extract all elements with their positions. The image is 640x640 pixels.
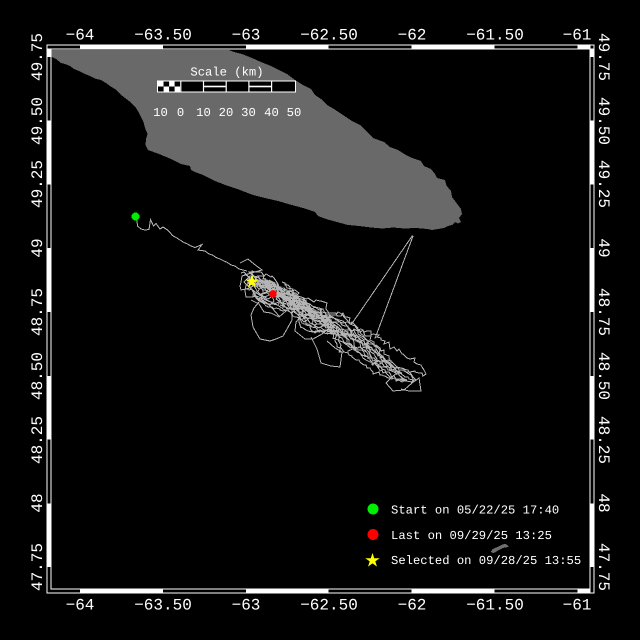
svg-text:48.25: 48.25 <box>29 416 47 464</box>
svg-text:−62: −62 <box>398 27 427 45</box>
svg-text:−64: −64 <box>66 597 95 615</box>
svg-text:10: 10 <box>196 106 211 120</box>
svg-text:49: 49 <box>29 238 47 257</box>
svg-text:49: 49 <box>594 238 612 257</box>
svg-text:−62: −62 <box>398 597 427 615</box>
svg-text:−61.50: −61.50 <box>466 597 524 615</box>
svg-text:47.75: 47.75 <box>594 543 612 591</box>
svg-text:Last on 09/29/25 13:25: Last on 09/29/25 13:25 <box>391 529 552 543</box>
svg-text:Scale (km): Scale (km) <box>190 66 263 80</box>
svg-text:−61: −61 <box>563 27 592 45</box>
svg-text:−61: −61 <box>563 597 592 615</box>
svg-text:49.25: 49.25 <box>29 160 47 208</box>
svg-text:48.75: 48.75 <box>594 288 612 336</box>
svg-text:47.75: 47.75 <box>29 543 47 591</box>
svg-text:48.75: 48.75 <box>29 288 47 336</box>
svg-text:Selected on 09/28/25 13:55: Selected on 09/28/25 13:55 <box>391 554 581 568</box>
svg-text:48.50: 48.50 <box>594 352 612 400</box>
svg-text:49.50: 49.50 <box>29 97 47 145</box>
svg-text:−63: −63 <box>232 27 261 45</box>
svg-text:−62.50: −62.50 <box>300 597 358 615</box>
svg-text:10: 10 <box>153 106 168 120</box>
svg-text:50: 50 <box>287 106 302 120</box>
svg-text:−63.50: −63.50 <box>134 597 192 615</box>
svg-text:48: 48 <box>594 493 612 512</box>
svg-text:0: 0 <box>177 106 184 120</box>
svg-text:Start on 05/22/25 17:40: Start on 05/22/25 17:40 <box>391 504 559 518</box>
svg-text:20: 20 <box>219 106 234 120</box>
svg-text:49.25: 49.25 <box>594 160 612 208</box>
svg-text:48.25: 48.25 <box>594 416 612 464</box>
svg-text:−63.50: −63.50 <box>134 27 192 45</box>
svg-text:−61.50: −61.50 <box>466 27 524 45</box>
svg-text:30: 30 <box>241 106 256 120</box>
svg-text:49.75: 49.75 <box>594 33 612 81</box>
svg-text:48.50: 48.50 <box>29 352 47 400</box>
svg-text:49.50: 49.50 <box>594 97 612 145</box>
svg-text:49.75: 49.75 <box>29 33 47 81</box>
svg-text:40: 40 <box>264 106 279 120</box>
svg-text:−63: −63 <box>232 597 261 615</box>
svg-text:−64: −64 <box>66 27 95 45</box>
svg-text:−62.50: −62.50 <box>300 27 358 45</box>
svg-text:48: 48 <box>29 493 47 512</box>
